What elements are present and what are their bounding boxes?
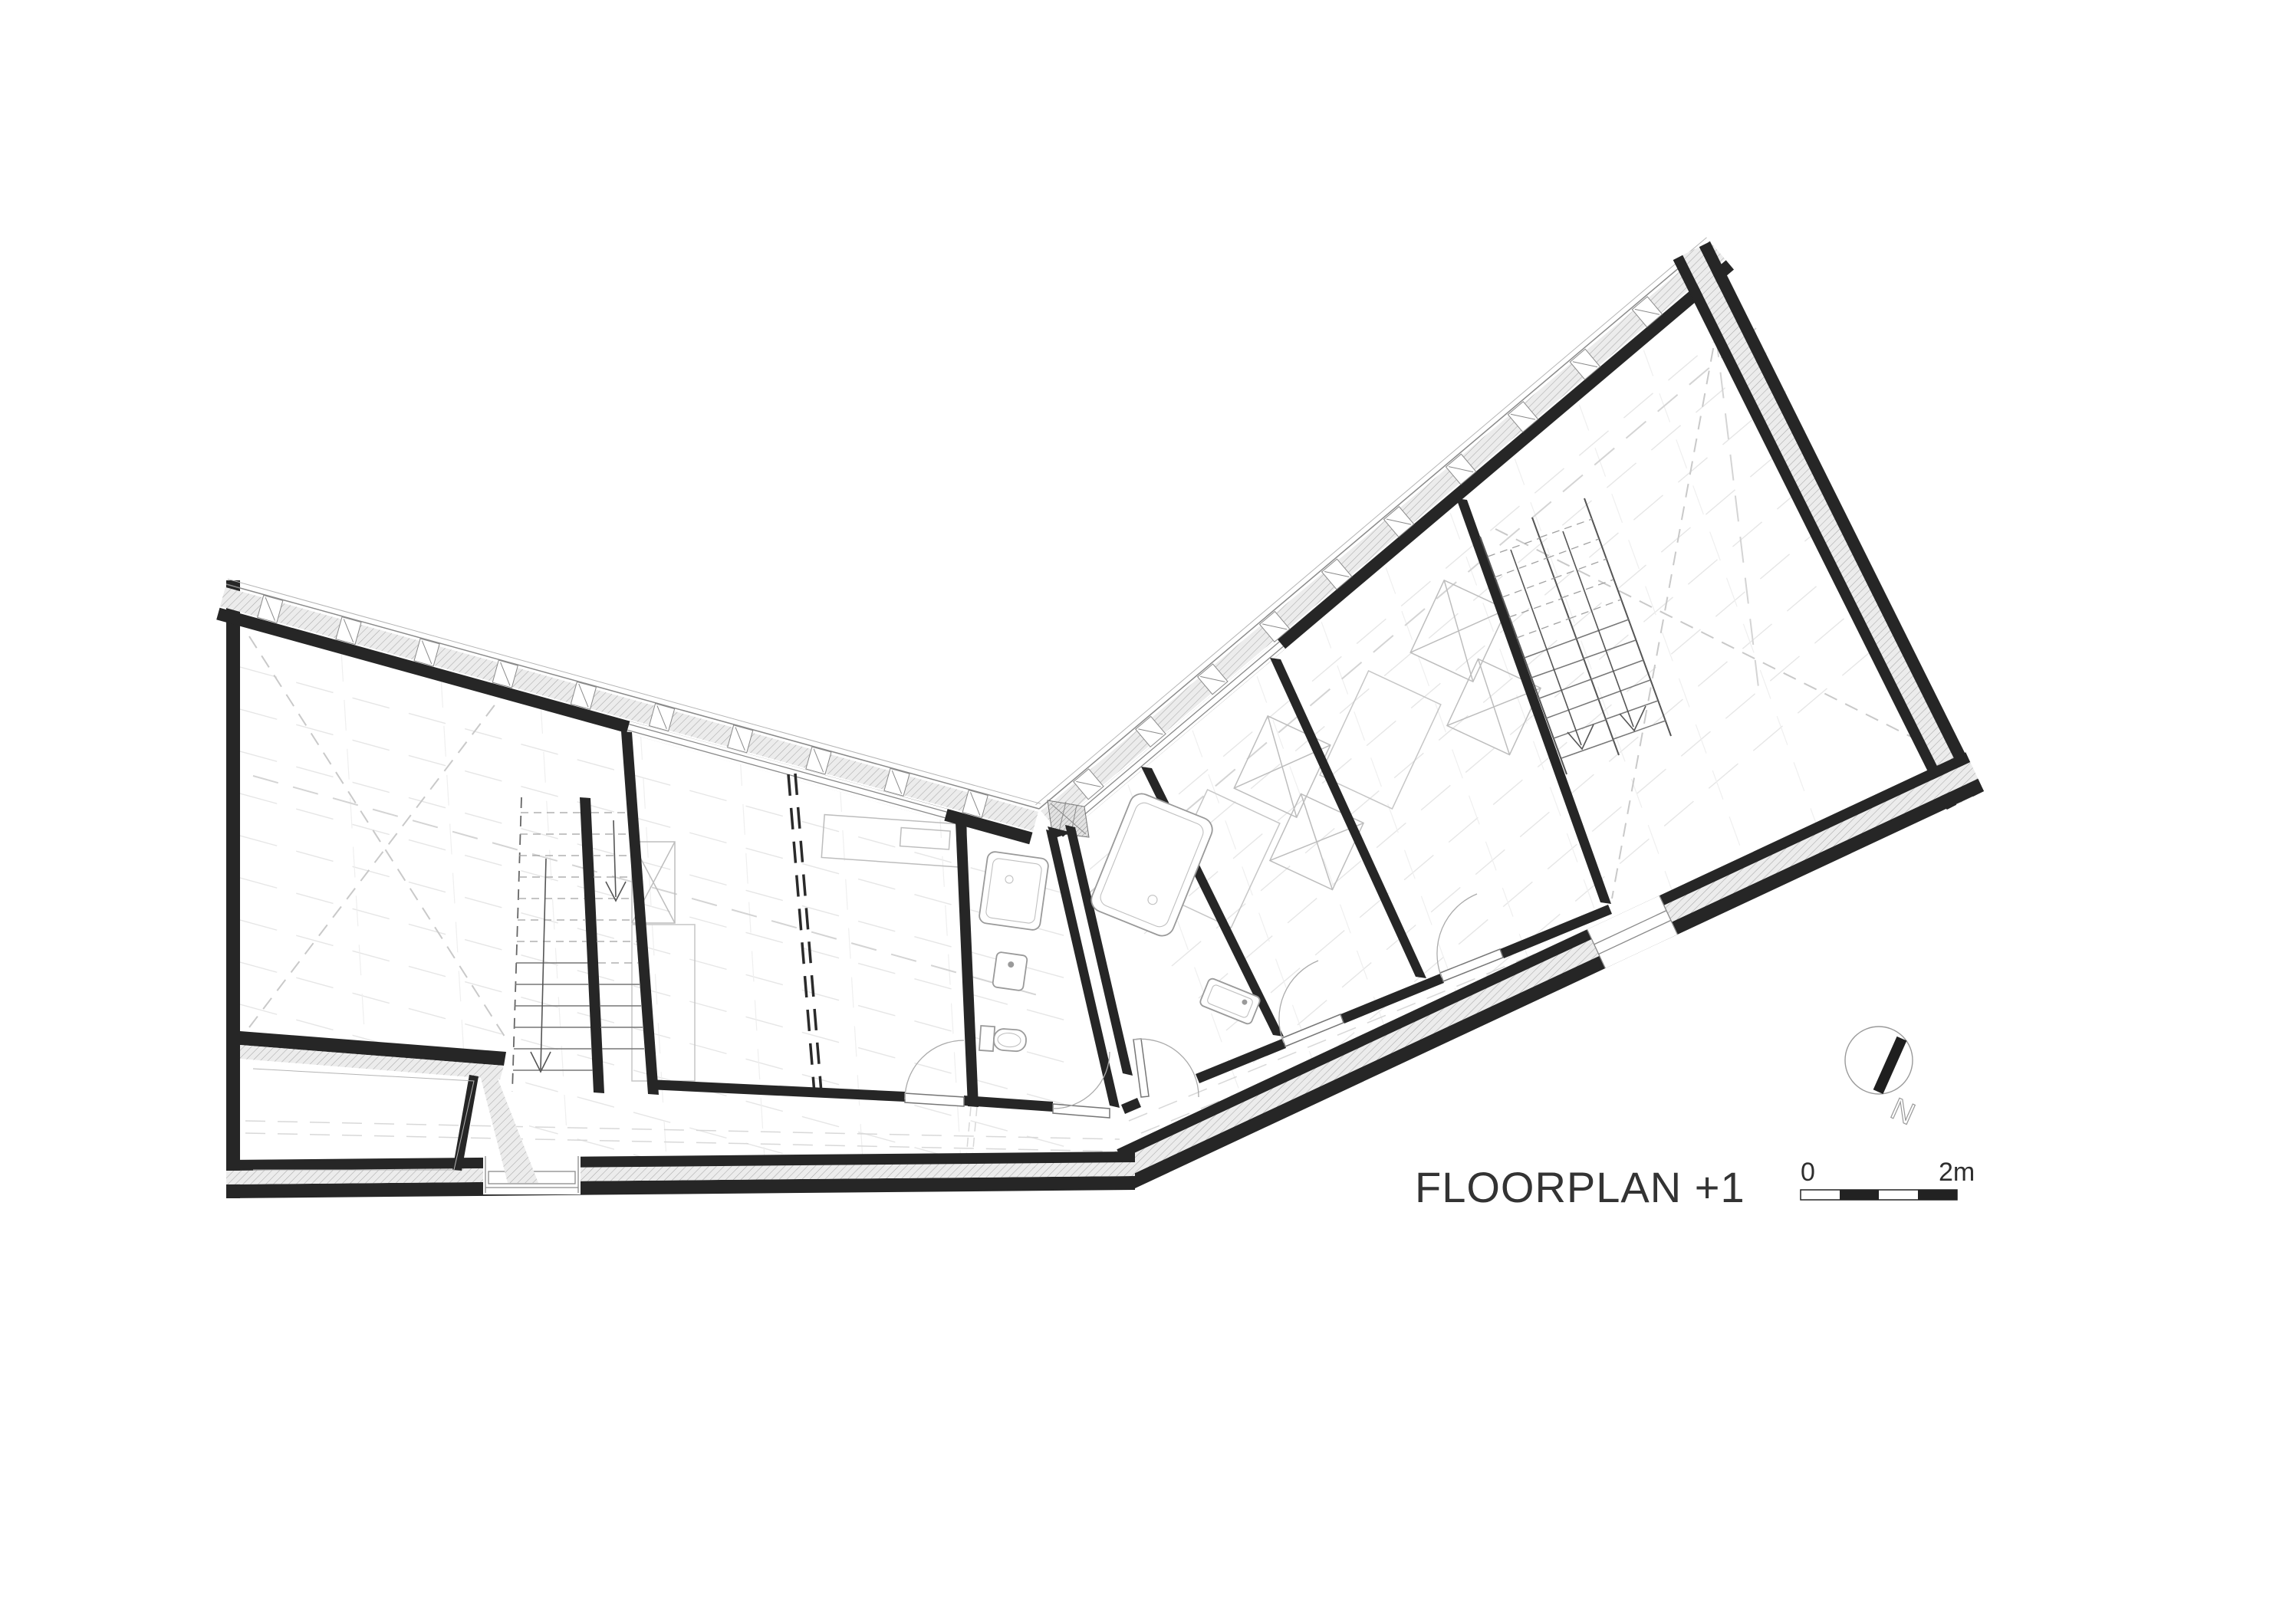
door [905, 1040, 964, 1106]
corridor-wall-right [1121, 905, 1612, 1114]
west-wall [226, 580, 240, 1198]
north-label: N [1886, 1092, 1919, 1132]
wardrobe [1270, 793, 1363, 889]
stair-direction-arrow [1511, 531, 1646, 749]
window [1587, 895, 1678, 968]
title-block: FLOORPLAN +1 0 2m N [1415, 1027, 1975, 1211]
right-facade [1036, 238, 1735, 837]
door [1279, 961, 1344, 1046]
facade-studs [258, 297, 1663, 817]
south-wall [226, 1152, 1135, 1198]
toilet [979, 1026, 1027, 1053]
partitions-right-wing [1121, 498, 1612, 1114]
shower-room-wall [956, 822, 979, 1107]
room-partition [621, 731, 659, 1095]
door [1133, 1039, 1199, 1097]
stair-left-wing [512, 797, 644, 1092]
scale-start-label: 0 [1801, 1158, 1815, 1187]
scale-bar: 0 2m [1801, 1158, 1975, 1200]
wardrobe [1234, 716, 1331, 817]
shower-tray [979, 851, 1049, 931]
north-arrow-icon: N [1845, 1027, 1919, 1132]
floor-pattern-right-wing [1063, 144, 2128, 1330]
washbasin [992, 951, 1028, 991]
stair-treads-upper [517, 813, 638, 963]
floorplan-drawing: FLOORPLAN +1 0 2m N [0, 0, 2296, 1623]
door [1437, 894, 1503, 981]
drawing-title: FLOORPLAN +1 [1415, 1163, 1745, 1211]
bedroom-partition [1456, 498, 1611, 904]
scale-end-label: 2m [1939, 1158, 1975, 1187]
northeast-wall [1673, 241, 1984, 810]
stair-treads-lower [513, 963, 644, 1070]
floor-pattern-left-wing [240, 651, 1066, 1358]
